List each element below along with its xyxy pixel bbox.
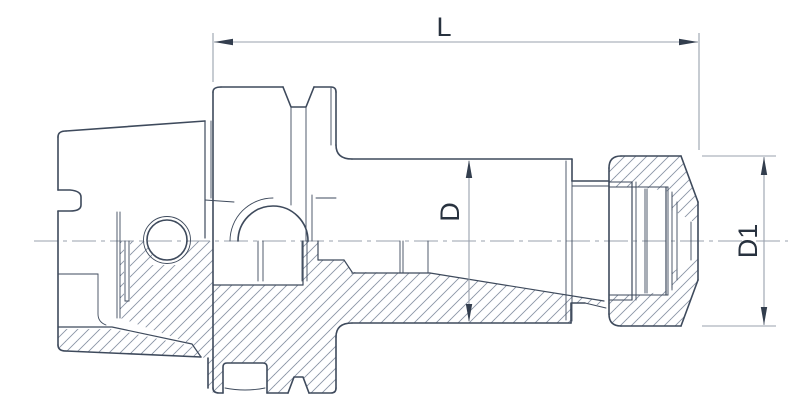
retention-notch [58, 190, 81, 211]
arrowhead-up [466, 160, 472, 178]
dimension-label-body-diameter: D [435, 202, 465, 222]
arrowhead-left [214, 39, 233, 45]
arrowhead-down [761, 307, 767, 325]
technical-drawing-page: L D D1 [0, 0, 812, 417]
hatch-main-body [120, 241, 604, 393]
technical-drawing-canvas: L D D1 [0, 0, 812, 417]
dimension-label-nut-diameter: D1 [733, 224, 763, 259]
dimension-label-length: L [436, 12, 451, 42]
arrowhead-right [679, 39, 698, 45]
drive-slot-dome [238, 206, 308, 241]
arrowhead-up [761, 157, 767, 175]
dimension-L: L [213, 12, 699, 150]
v-groove [283, 87, 314, 107]
section-hatching [58, 156, 698, 393]
